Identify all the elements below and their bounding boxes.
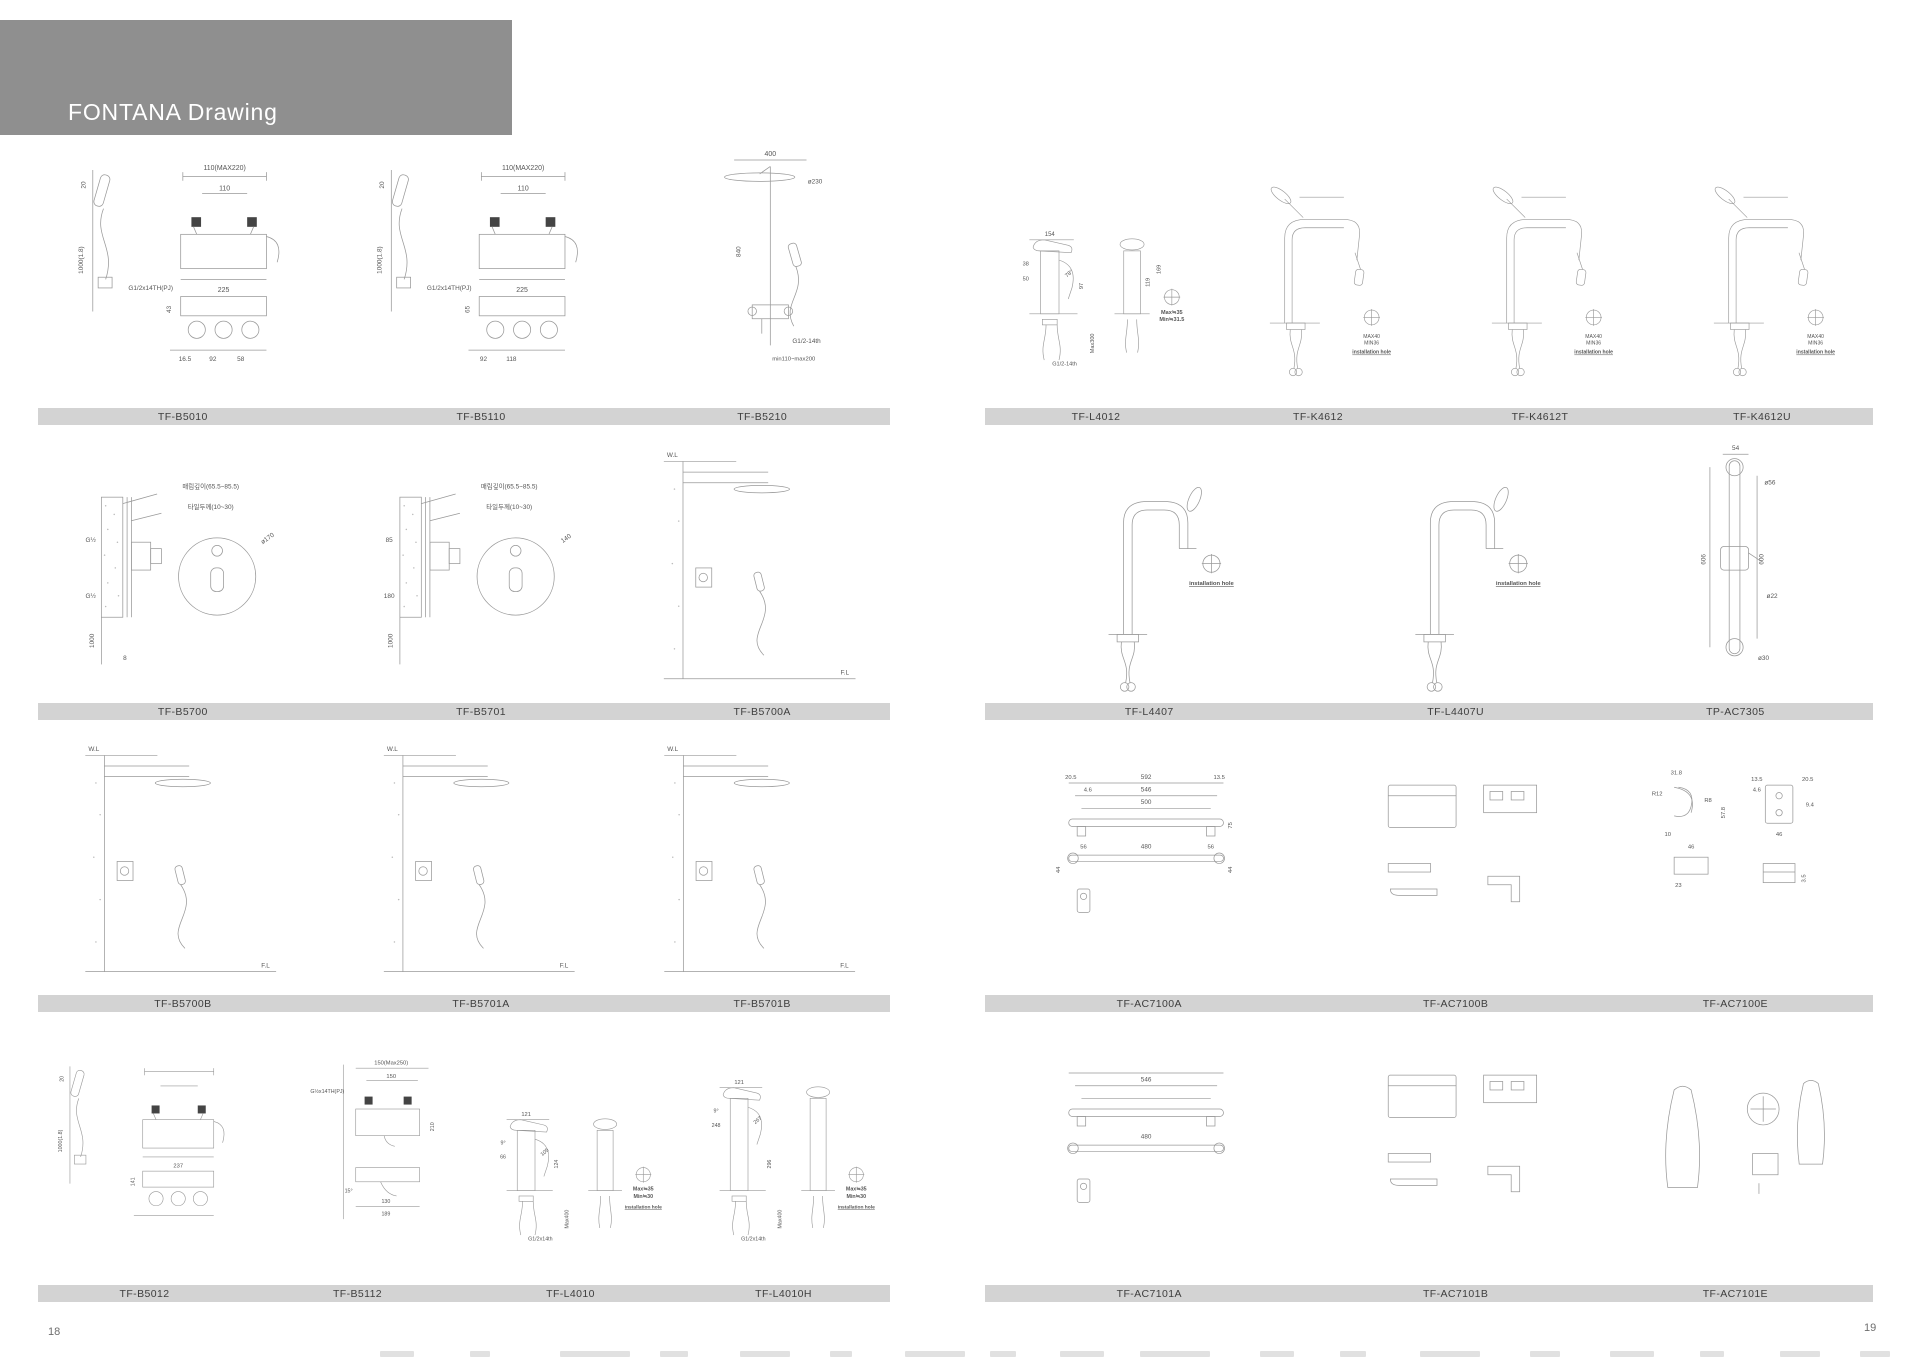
svg-text:타일두께(10~30): 타일두께(10~30) <box>486 502 532 511</box>
svg-text:Max≒35: Max≒35 <box>846 1187 867 1193</box>
drawing-TF-K4612: MAX40MIN36installation hole <box>1207 140 1429 408</box>
svg-text:F.L: F.L <box>841 669 850 676</box>
svg-text:121: 121 <box>521 1112 531 1118</box>
svg-text:546: 546 <box>1141 1076 1152 1083</box>
svg-text:500: 500 <box>1141 799 1152 806</box>
svg-text:min110~max200: min110~max200 <box>773 356 817 362</box>
artifact-mark <box>1530 1351 1560 1357</box>
svg-text:타일두께(10~30): 타일두께(10~30) <box>188 502 234 511</box>
svg-text:46: 46 <box>1688 845 1694 851</box>
drawing-TF-B5112: 150(Max250)150G½x14TH(PJ)21015°130189 <box>251 1020 464 1285</box>
model-label: TF-AC7100B <box>1314 998 1598 1010</box>
svg-text:225: 225 <box>218 287 230 294</box>
svg-text:546: 546 <box>1141 786 1152 793</box>
svg-text:169: 169 <box>1157 265 1163 274</box>
label-bar: TF-B5012TF-B5112TF-L4010TF-L4010H <box>38 1285 890 1302</box>
drawing-TF-AC7100B <box>1314 730 1598 995</box>
svg-text:480: 480 <box>1141 1134 1152 1141</box>
drawing-row: W.LF.L W.LF.L W.LF.LTF-B5700BTF-B5701ATF… <box>38 730 890 1012</box>
drawing-row: 110(MAX220)110201000(1.8)G1/2x14TH(PJ)22… <box>38 140 890 425</box>
svg-text:ø30: ø30 <box>1758 655 1769 662</box>
drawing-row: 매립깊이(65.5~85.5)타일두께(10~30)G½G½ø17010008 … <box>38 435 890 720</box>
svg-text:15°: 15° <box>345 1188 353 1194</box>
svg-text:140: 140 <box>560 533 573 545</box>
svg-text:840: 840 <box>736 246 743 257</box>
svg-text:20: 20 <box>378 181 385 189</box>
label-bar: TF-AC7100ATF-AC7100BTF-AC7100E <box>985 995 1873 1012</box>
svg-text:92: 92 <box>209 356 217 363</box>
svg-text:Max≒35: Max≒35 <box>1161 309 1183 316</box>
svg-text:119: 119 <box>1146 278 1152 287</box>
drawing-TF-L4010H: 1219°248267296Max400Max≒35Min≒30G1/2x14t… <box>677 1020 890 1285</box>
svg-text:Min≒31.5: Min≒31.5 <box>1159 316 1184 323</box>
svg-text:150: 150 <box>386 1074 396 1080</box>
drawing-TP-AC7305: 54ø56606600ø22ø30 <box>1598 435 1873 703</box>
model-label: TF-L4010 <box>464 1288 677 1300</box>
drawing-TF-L4407: installation hole <box>985 435 1314 703</box>
drawing-TF-K4612U: MAX40MIN36installation hole <box>1651 140 1873 408</box>
page-number-left: 18 <box>48 1326 60 1338</box>
model-label: TF-L4407 <box>985 706 1314 718</box>
svg-text:Max≒35: Max≒35 <box>633 1187 654 1193</box>
svg-text:10: 10 <box>1664 832 1671 838</box>
svg-text:31.8: 31.8 <box>1670 771 1681 777</box>
svg-text:MIN36: MIN36 <box>1364 340 1379 346</box>
svg-text:installation hole: installation hole <box>1796 350 1835 356</box>
svg-text:매립깊이(65.5~85.5): 매립깊이(65.5~85.5) <box>481 482 538 491</box>
svg-text:92: 92 <box>480 356 488 363</box>
drawing-TF-B5012: 201000(1.8)237141 <box>38 1020 251 1285</box>
model-label: TF-K4612 <box>1207 411 1429 423</box>
svg-text:W.L: W.L <box>667 452 678 459</box>
drawing-TF-AC7101B <box>1314 1020 1598 1285</box>
svg-text:R12: R12 <box>1652 792 1663 798</box>
svg-text:54: 54 <box>1732 445 1740 452</box>
bottom-artifact-strip <box>0 1350 1920 1357</box>
svg-text:G1/2x14th: G1/2x14th <box>528 1236 553 1242</box>
svg-text:154: 154 <box>1045 232 1056 238</box>
drawing-TF-K4612T: MAX40MIN36installation hole <box>1429 140 1651 408</box>
svg-text:G½: G½ <box>85 536 96 544</box>
svg-text:13.5: 13.5 <box>1214 775 1225 781</box>
svg-text:9°: 9° <box>714 1109 719 1115</box>
model-label: TF-B5112 <box>251 1288 464 1300</box>
svg-text:210: 210 <box>430 1122 436 1131</box>
svg-text:23: 23 <box>1675 883 1681 889</box>
svg-text:44: 44 <box>1228 866 1234 873</box>
svg-text:44: 44 <box>1056 866 1062 873</box>
svg-text:66: 66 <box>500 1155 506 1161</box>
model-label: TF-B5701A <box>328 998 635 1010</box>
svg-text:G1/2x14TH(PJ): G1/2x14TH(PJ) <box>427 285 472 292</box>
svg-text:installation hole: installation hole <box>1495 581 1540 587</box>
svg-text:13.5: 13.5 <box>1751 777 1762 783</box>
drawing-TF-B5701: 매립깊이(65.5~85.5)타일두께(10~30)851801401000 <box>328 435 635 703</box>
artifact-mark <box>740 1351 790 1357</box>
drawing-TF-AC7101E <box>1598 1020 1873 1285</box>
drawing-TF-L4407U: installation hole <box>1314 435 1598 703</box>
artifact-mark <box>1780 1351 1820 1357</box>
model-label: TP-AC7305 <box>1598 706 1873 718</box>
page-number-right: 19 <box>1864 1322 1876 1334</box>
svg-text:F.L: F.L <box>261 962 270 969</box>
model-label: TF-AC7100E <box>1598 998 1873 1010</box>
svg-text:180: 180 <box>383 593 394 600</box>
svg-text:ø230: ø230 <box>808 178 823 185</box>
svg-text:1000(1.8): 1000(1.8) <box>58 1129 64 1152</box>
model-label: TF-AC7101B <box>1314 1288 1598 1300</box>
svg-text:225: 225 <box>516 287 528 294</box>
model-label: TF-AC7100A <box>985 998 1314 1010</box>
svg-text:56: 56 <box>1208 845 1214 851</box>
artifact-mark <box>1140 1351 1210 1357</box>
svg-text:110(MAX220): 110(MAX220) <box>203 165 245 172</box>
svg-text:110: 110 <box>219 185 230 192</box>
artifact-mark <box>1860 1351 1890 1357</box>
model-label: TF-AC7101A <box>985 1288 1314 1300</box>
drawing-TF-B5701B: W.LF.L <box>634 730 890 995</box>
svg-text:43: 43 <box>166 305 173 313</box>
svg-text:189: 189 <box>381 1212 390 1218</box>
artifact-mark <box>830 1351 852 1357</box>
artifact-mark <box>660 1351 688 1357</box>
svg-text:20.5: 20.5 <box>1065 775 1076 781</box>
svg-text:97: 97 <box>1079 283 1085 289</box>
artifact-mark <box>905 1351 965 1357</box>
svg-text:110(MAX220): 110(MAX220) <box>502 165 544 172</box>
catalog-spread: FONTANA Drawing 110(MAX220)110201000(1.8… <box>0 0 1920 1357</box>
svg-text:141: 141 <box>131 1177 137 1186</box>
svg-text:F.L: F.L <box>559 962 568 969</box>
svg-text:4.6: 4.6 <box>1752 787 1760 793</box>
drawing-row: 154385078°97119169Max300Max≒35Min≒31.5G1… <box>985 140 1873 425</box>
svg-text:Max400: Max400 <box>778 1210 784 1229</box>
drawing-TF-L4012: 154385078°97119169Max300Max≒35Min≒31.5G1… <box>985 140 1207 408</box>
svg-text:480: 480 <box>1141 844 1152 851</box>
model-label: TF-B5700B <box>38 998 328 1010</box>
svg-text:1000(1.8): 1000(1.8) <box>78 246 85 274</box>
artifact-mark <box>560 1351 630 1357</box>
svg-text:9.4: 9.4 <box>1805 802 1814 808</box>
svg-text:150(Max250): 150(Max250) <box>374 1061 408 1067</box>
label-bar: TF-AC7101ATF-AC7101BTF-AC7101E <box>985 1285 1873 1302</box>
svg-text:매립깊이(65.5~85.5): 매립깊이(65.5~85.5) <box>182 482 239 491</box>
svg-text:1000: 1000 <box>387 633 394 648</box>
svg-text:121: 121 <box>734 1080 744 1086</box>
artifact-mark <box>990 1351 1016 1357</box>
svg-text:1000: 1000 <box>89 633 96 648</box>
svg-text:237: 237 <box>173 1164 183 1170</box>
model-label: TF-B5012 <box>38 1288 251 1300</box>
svg-text:G1/2-14th: G1/2-14th <box>793 338 822 345</box>
drawing-TF-B5700A: W.LF.L <box>634 435 890 703</box>
svg-text:600: 600 <box>1758 554 1765 565</box>
svg-text:Max300: Max300 <box>1090 334 1096 354</box>
label-bar: TF-L4012TF-K4612TF-K4612TTF-K4612U <box>985 408 1873 425</box>
svg-text:Min≒30: Min≒30 <box>847 1194 867 1200</box>
artifact-mark <box>1260 1351 1294 1357</box>
drawing-TF-B5010: 110(MAX220)110201000(1.8)G1/2x14TH(PJ)22… <box>38 140 328 408</box>
svg-text:38: 38 <box>1023 262 1029 268</box>
svg-text:592: 592 <box>1141 774 1152 781</box>
svg-text:installation hole: installation hole <box>1352 350 1391 356</box>
svg-text:606: 606 <box>1700 554 1707 565</box>
svg-text:296: 296 <box>767 1160 773 1169</box>
model-label: TF-B5700 <box>38 706 328 718</box>
svg-text:installation hole: installation hole <box>1189 581 1234 587</box>
artifact-mark <box>1060 1351 1104 1357</box>
model-label: TF-B5010 <box>38 411 328 423</box>
drawing-TF-B5701A: W.LF.L <box>328 730 635 995</box>
svg-text:57.8: 57.8 <box>1721 807 1727 818</box>
svg-text:9°: 9° <box>501 1141 506 1147</box>
svg-text:50: 50 <box>1023 276 1029 282</box>
model-label: TF-L4010H <box>677 1288 890 1300</box>
svg-text:W.L: W.L <box>88 746 99 753</box>
drawing-TF-B5110: 110(MAX220)110201000(1.8)G1/2x14TH(PJ)22… <box>328 140 635 408</box>
svg-text:Max400: Max400 <box>565 1210 571 1229</box>
svg-text:G1/2x14th: G1/2x14th <box>741 1236 766 1242</box>
svg-text:1000(1.8): 1000(1.8) <box>376 246 383 274</box>
svg-text:G1/2-14th: G1/2-14th <box>1052 362 1077 368</box>
svg-text:46: 46 <box>1776 832 1782 838</box>
svg-text:56: 56 <box>1080 845 1086 851</box>
model-label: TF-K4612T <box>1429 411 1651 423</box>
svg-text:3.5: 3.5 <box>1801 874 1807 882</box>
svg-text:124: 124 <box>554 1160 560 1169</box>
label-bar: TF-B5700BTF-B5701ATF-B5701B <box>38 995 890 1012</box>
drawing-TF-AC7100E: 31.8R12R857.81046234613.54.620.59.43.5 <box>1598 730 1873 995</box>
model-label: TF-L4012 <box>985 411 1207 423</box>
label-bar: TF-B5700TF-B5701TF-B5700A <box>38 703 890 720</box>
model-label: TF-L4407U <box>1314 706 1598 718</box>
drawing-TF-L4010: 1219°66105124Max400Max≒35Min≒30G1/2x14th… <box>464 1020 677 1285</box>
drawing-row: 201000(1.8)237141 150(Max250)150G½x14TH(… <box>38 1020 890 1302</box>
artifact-mark <box>1420 1351 1480 1357</box>
model-label: TF-B5110 <box>328 411 635 423</box>
svg-text:65: 65 <box>464 305 471 313</box>
svg-text:MAX40: MAX40 <box>1363 334 1380 340</box>
drawing-TF-AC7100A: 20.54.613.55465925005648056754444 <box>985 730 1314 995</box>
svg-text:installation hole: installation hole <box>1574 350 1613 356</box>
svg-text:ø170: ø170 <box>260 532 276 546</box>
drawing-row: 20.54.613.55465925005648056754444 31.8R1… <box>985 730 1873 1012</box>
drawing-TF-B5700: 매립깊이(65.5~85.5)타일두께(10~30)G½G½ø17010008 <box>38 435 328 703</box>
svg-text:G½: G½ <box>85 592 96 600</box>
svg-text:ø22: ø22 <box>1766 593 1777 600</box>
page-left: 110(MAX220)110201000(1.8)G1/2x14TH(PJ)22… <box>38 0 890 1357</box>
svg-text:248: 248 <box>712 1123 721 1129</box>
model-label: TF-B5210 <box>634 411 890 423</box>
label-bar: TF-B5010TF-B5110TF-B5210 <box>38 408 890 425</box>
svg-text:8: 8 <box>123 655 127 662</box>
svg-text:110: 110 <box>517 185 528 192</box>
svg-text:20: 20 <box>60 1076 66 1082</box>
svg-text:4.6: 4.6 <box>1084 787 1092 793</box>
svg-text:85: 85 <box>385 537 393 544</box>
svg-text:W.L: W.L <box>387 746 398 753</box>
svg-text:MAX40: MAX40 <box>1807 334 1824 340</box>
model-label: TF-B5701B <box>634 998 890 1010</box>
model-label: TF-AC7101E <box>1598 1288 1873 1300</box>
svg-text:400: 400 <box>765 151 777 158</box>
svg-text:20: 20 <box>80 181 87 189</box>
svg-text:F.L: F.L <box>841 962 850 969</box>
svg-text:Min≒30: Min≒30 <box>634 1194 654 1200</box>
drawing-TF-AC7101A: 546480 <box>985 1020 1314 1285</box>
drawing-row: installation hole installation hole 54ø5… <box>985 435 1873 720</box>
svg-text:MIN36: MIN36 <box>1808 340 1823 346</box>
svg-text:ø56: ø56 <box>1764 479 1775 486</box>
svg-text:130: 130 <box>381 1199 390 1205</box>
page-right: 154385078°97119169Max300Max≒35Min≒31.5G1… <box>985 0 1873 1357</box>
svg-text:installation hole: installation hole <box>838 1204 875 1210</box>
drawing-TF-B5210: 400ø230840min110~max200G1/2-14th <box>634 140 890 408</box>
artifact-mark <box>1700 1351 1724 1357</box>
svg-text:installation hole: installation hole <box>625 1204 662 1210</box>
svg-text:MIN36: MIN36 <box>1586 340 1601 346</box>
model-label: TF-B5701 <box>328 706 635 718</box>
label-bar: TF-L4407TF-L4407UTP-AC7305 <box>985 703 1873 720</box>
svg-text:16.5: 16.5 <box>179 356 192 363</box>
svg-text:75: 75 <box>1228 822 1234 828</box>
svg-text:W.L: W.L <box>668 746 679 753</box>
svg-text:G½x14TH(PJ): G½x14TH(PJ) <box>310 1088 344 1095</box>
model-label: TF-B5700A <box>634 706 890 718</box>
svg-text:118: 118 <box>506 356 517 363</box>
svg-text:20.5: 20.5 <box>1802 777 1813 783</box>
svg-text:MAX40: MAX40 <box>1585 334 1602 340</box>
svg-text:G1/2x14TH(PJ): G1/2x14TH(PJ) <box>128 285 173 292</box>
svg-text:58: 58 <box>237 356 245 363</box>
artifact-mark <box>1610 1351 1654 1357</box>
drawing-row: 546480 TF-AC7101ATF-AC7101BTF-AC7101E <box>985 1020 1873 1302</box>
artifact-mark <box>470 1351 490 1357</box>
artifact-mark <box>380 1351 414 1357</box>
artifact-mark <box>1340 1351 1366 1357</box>
model-label: TF-K4612U <box>1651 411 1873 423</box>
svg-text:R8: R8 <box>1704 798 1711 804</box>
drawing-TF-B5700B: W.LF.L <box>38 730 328 995</box>
